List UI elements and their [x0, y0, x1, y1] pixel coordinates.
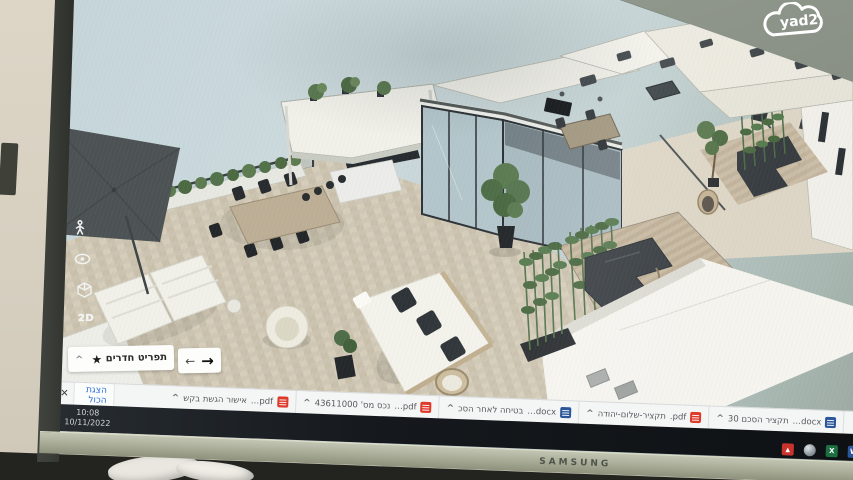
download-file-ext: …pdf [394, 401, 417, 412]
download-file-ext: …docx [527, 406, 556, 417]
pdf-file-icon [277, 396, 288, 407]
download-filename: תקציר-שלום-יהודה [597, 409, 666, 422]
chevron-up-icon[interactable]: ^ [716, 413, 724, 423]
star-icon[interactable]: ★ [91, 352, 102, 366]
download-file-ext: …pdf [251, 396, 274, 407]
rattan-chair [436, 369, 468, 395]
2d-view-icon[interactable]: 2D [77, 309, 95, 327]
3d-view-icon[interactable] [75, 281, 93, 299]
word-icon[interactable]: W [848, 446, 853, 458]
download-filename: תקציר הסכם 30 [728, 414, 789, 426]
acrobat-reader-icon[interactable]: ▲ [782, 443, 794, 455]
word-file-icon [825, 417, 836, 428]
downloads-bar-spacer [115, 396, 165, 398]
walk-view-icon[interactable] [71, 219, 89, 237]
word-file-icon [560, 407, 571, 418]
pdf-file-icon [420, 402, 431, 413]
chevron-up-icon: ^ [75, 355, 84, 366]
download-filename: בטיחה לאחר הסכ [458, 404, 524, 416]
chevron-up-icon[interactable]: ^ [171, 393, 179, 403]
chevron-up-icon[interactable]: ^ [586, 408, 594, 418]
download-file-ext: …docx [792, 416, 821, 427]
pdf-file-icon [690, 412, 701, 423]
taskbar-clock[interactable]: 10:08 10/11/2022 [64, 407, 111, 429]
yad2-watermark: yad2 [750, 0, 837, 46]
yad2-logo-text: yad2 [779, 12, 819, 31]
download-item-partial[interactable]: ^ [844, 412, 853, 436]
chevron-up-icon[interactable]: ^ [303, 398, 311, 408]
monitor-screen: 2D < ^ ★ תפריט חדרים ← → ✕ הצגת הכול ^ א… [0, 0, 853, 480]
back-arrow-icon[interactable]: ← [185, 354, 195, 368]
download-file-ext: .pdf [670, 412, 687, 423]
rooms-menu-label: תפריט חדרים [106, 352, 168, 364]
rooms-menu-button[interactable]: ^ ★ תפריט חדרים [68, 345, 175, 372]
clock-date: 10/11/2022 [64, 418, 110, 430]
monitor-brand-logo: SAMSUNG [539, 457, 611, 470]
download-filename: נכס מס' 43611000 [314, 398, 390, 411]
taskbar-app-icons: ▲ X W [782, 443, 853, 458]
excel-icon[interactable]: X [826, 445, 838, 457]
photo-of-monitor: 2D < ^ ★ תפריט חדרים ← → ✕ הצגת הכול ^ א… [0, 0, 853, 480]
browser-icon[interactable] [804, 444, 816, 456]
view-nav-buttons[interactable]: ← → [178, 348, 222, 374]
object-on-wall [0, 143, 18, 196]
forward-arrow-icon[interactable]: → [201, 351, 214, 369]
orbit-view-icon[interactable] [73, 250, 91, 268]
download-filename: אישור הגשת בקש [183, 393, 247, 405]
chevron-up-icon[interactable]: ^ [446, 403, 454, 413]
